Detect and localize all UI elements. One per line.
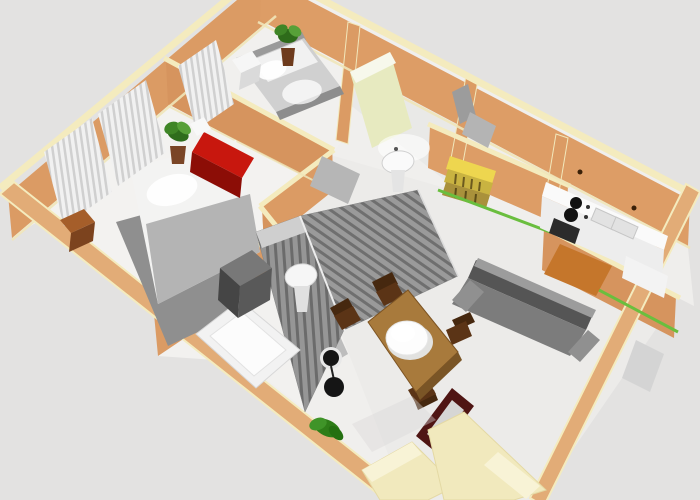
floor-plan-3d-viewport[interactable] <box>0 0 700 500</box>
stove-knob <box>584 215 588 219</box>
wall-sconce <box>578 170 583 175</box>
stove-burner <box>564 208 578 222</box>
book-spine <box>471 179 472 189</box>
table-bowl-highlight <box>391 324 415 342</box>
wc-sink-pedestal <box>391 170 405 192</box>
shape-root <box>0 0 700 500</box>
plant-top-pot <box>281 48 295 66</box>
book-spine <box>463 177 464 187</box>
floor-lamp-base <box>324 377 344 397</box>
floor-lamp-shade <box>323 350 339 366</box>
book-spine <box>475 194 476 203</box>
stove-knob <box>586 205 590 209</box>
wc-faucet-dot <box>394 147 398 151</box>
book-spine <box>479 182 480 191</box>
stove-burner <box>570 197 582 209</box>
plant-left-pot <box>170 146 186 164</box>
book-spine <box>455 174 456 184</box>
wall-sconce <box>632 206 637 211</box>
floor-plan-3d-render[interactable] <box>0 0 700 500</box>
